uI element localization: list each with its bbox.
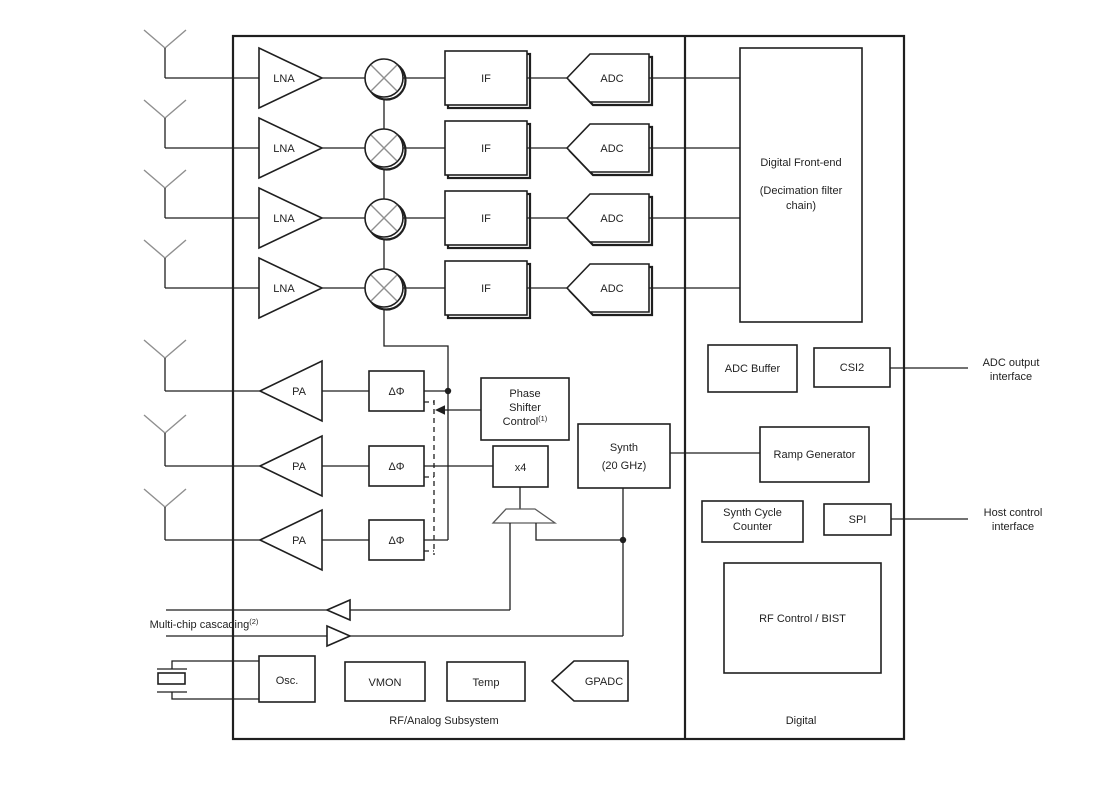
rf-analog-subsystem-label: RF/Analog Subsystem <box>389 715 498 727</box>
svg-text:Ramp Generator: Ramp Generator <box>774 449 856 461</box>
spi-block: SPI <box>824 504 891 535</box>
svg-text:ADC output: ADC output <box>983 357 1040 369</box>
svg-text:interface: interface <box>990 371 1032 383</box>
osc-block: Osc. <box>259 656 315 702</box>
svg-text:Counter: Counter <box>733 521 772 533</box>
svg-text:(20 GHz): (20 GHz) <box>602 460 647 472</box>
svg-text:VMON: VMON <box>369 677 402 689</box>
crystal-icon <box>157 661 259 699</box>
synth-block: Synth (20 GHz) <box>578 424 670 488</box>
svg-text:Shifter: Shifter <box>509 402 541 414</box>
svg-text:Temp: Temp <box>473 677 500 689</box>
tx-row-1 <box>144 340 434 421</box>
svg-text:(Decimation filter: (Decimation filter <box>760 185 843 197</box>
digital-front-end-block: Digital Front-end (Decimation filter cha… <box>740 48 862 322</box>
rf-control-bist-block: RF Control / BIST <box>724 563 881 673</box>
svg-text:CSI2: CSI2 <box>840 362 864 374</box>
tx-row-2 <box>144 415 434 496</box>
csi2-block: CSI2 <box>814 348 890 387</box>
mux-right-leg-wire <box>536 523 623 540</box>
adc-buffer-block: ADC Buffer <box>708 345 797 392</box>
block-diagram: LNA IF ADC <box>0 0 1108 790</box>
svg-text:SPI: SPI <box>849 514 867 526</box>
temp-block: Temp <box>447 662 525 701</box>
svg-text:Digital Front-end: Digital Front-end <box>760 157 841 169</box>
svg-text:interface: interface <box>992 521 1034 533</box>
svg-text:Osc.: Osc. <box>276 675 299 687</box>
svg-text:x4: x4 <box>515 462 527 474</box>
junction-dot <box>445 388 451 394</box>
vmon-block: VMON <box>345 662 425 701</box>
arrowhead-icon <box>435 405 445 415</box>
frequency-multiplier-block: x4 <box>493 446 548 487</box>
gpadc-block: GPADC <box>552 661 628 701</box>
svg-text:RF Control / BIST: RF Control / BIST <box>759 613 846 625</box>
phase-shifter-control-block: Phase Shifter Control(1) <box>481 378 569 440</box>
host-control-interface-label: Host control interface <box>984 507 1043 533</box>
junction-dot <box>620 537 626 543</box>
adc-output-interface-label: ADC output interface <box>983 357 1040 383</box>
lo-mux <box>493 509 555 523</box>
cascade-out-buffer-icon <box>327 600 350 620</box>
tx-row-3 <box>144 489 434 570</box>
svg-text:chain): chain) <box>786 200 816 212</box>
multi-chip-cascading-label: Multi-chip cascading(2) <box>150 617 259 631</box>
svg-text:Host control: Host control <box>984 507 1043 519</box>
diagram-canvas: LNA IF ADC <box>0 0 1108 790</box>
synth-cycle-counter-block: Synth Cycle Counter <box>702 501 803 542</box>
cascade-in-buffer-icon <box>327 626 350 646</box>
svg-text:Synth Cycle: Synth Cycle <box>723 507 782 519</box>
digital-label: Digital <box>786 715 817 727</box>
svg-text:ADC Buffer: ADC Buffer <box>725 363 781 375</box>
svg-text:Synth: Synth <box>610 442 638 454</box>
ramp-generator-block: Ramp Generator <box>760 427 869 482</box>
svg-text:GPADC: GPADC <box>585 676 623 688</box>
svg-text:Phase: Phase <box>509 388 540 400</box>
